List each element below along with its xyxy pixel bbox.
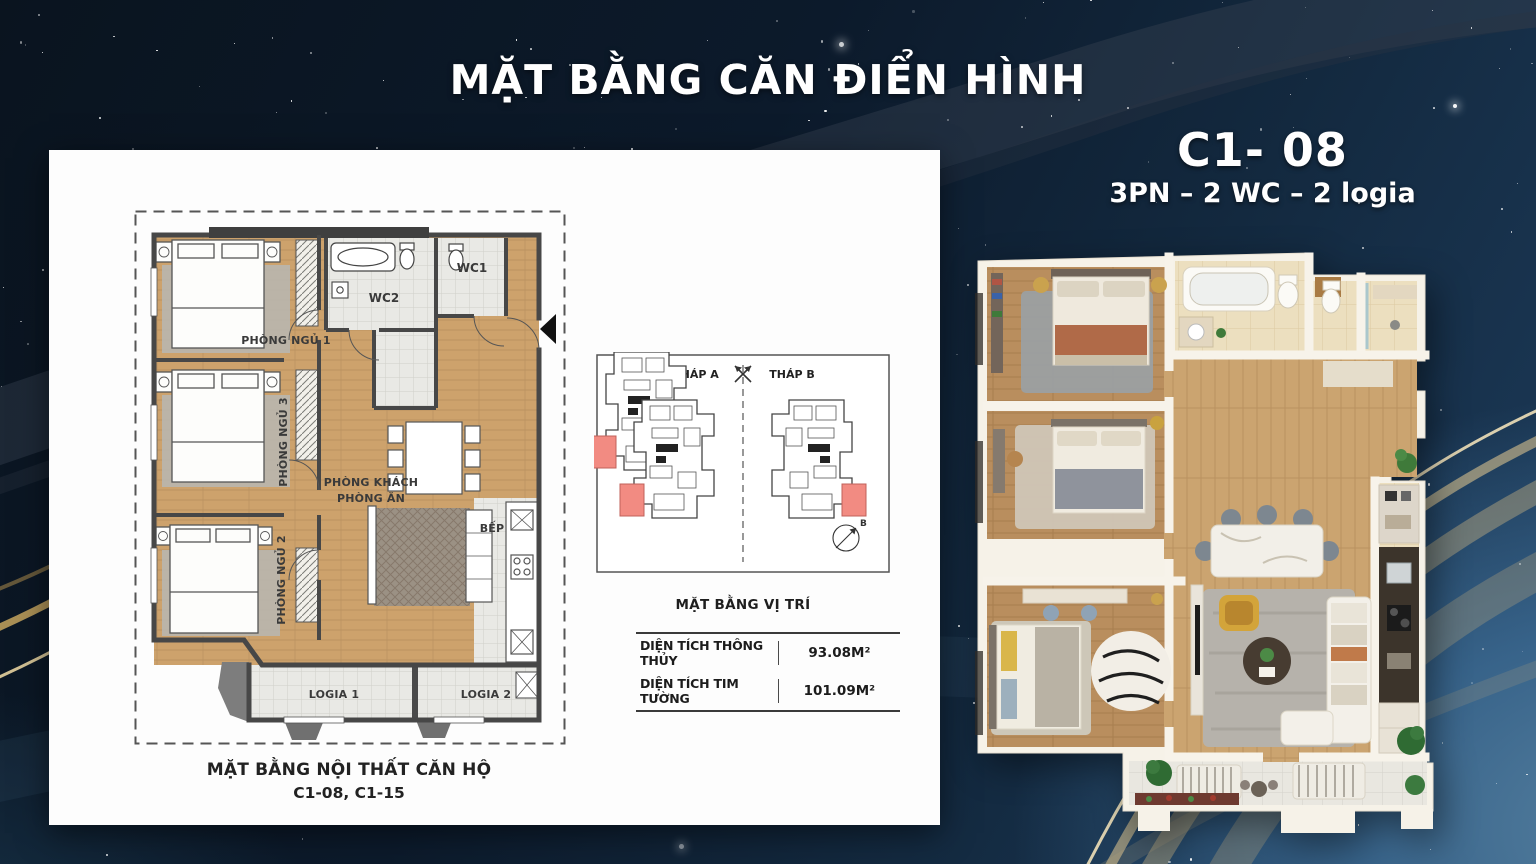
kitchen-counter-icon (506, 502, 539, 662)
room-label-dining: PHÒNG ĂN (337, 492, 405, 505)
room-label-logia1: LOGIA 1 (309, 688, 360, 701)
bathtub-icon (331, 243, 395, 271)
location-caption: MẶT BẰNG VỊ TRÍ (594, 597, 892, 613)
floorplan-panel: PHÒNG NGỦ 1 WC2 WC1 PHÒNG NGỦ 3 PHÒNG NG… (49, 150, 940, 825)
highlighted-unit (594, 436, 616, 468)
room-label-bedroom2: PHÒNG NGỦ 2 (274, 535, 288, 625)
area-row: DIỆN TÍCH THÔNG THỦY 93.08M² (636, 634, 900, 672)
living-rug (374, 508, 470, 606)
sink-icon (332, 282, 348, 298)
render-kitchen (1379, 485, 1419, 753)
area-table: DIỆN TÍCH THÔNG THỦY 93.08M² DIỆN TÍCH T… (636, 632, 900, 712)
room-label-bedroom3: PHÒNG NGỦ 3 (276, 397, 290, 487)
entry-arrow-icon (540, 314, 556, 344)
room-label-kitchen: BẾP (480, 520, 505, 535)
plan-caption: MẶT BẰNG NỘI THẤT CĂN HỘ C1-08, C1-15 (109, 760, 589, 802)
slide: MẶT BẰNG CĂN ĐIỂN HÌNH (0, 0, 1536, 864)
area-value: 93.08M² (778, 641, 900, 665)
room-label-living: PHÒNG KHÁCH (324, 476, 418, 489)
room-label-wc2: WC2 (369, 291, 399, 305)
area-label: DIỆN TÍCH THÔNG THỦY (636, 634, 778, 672)
room-label-wc1: WC1 (457, 261, 487, 275)
location-diagram: THÁP A THÁP B (594, 352, 892, 575)
wardrobe-icons (296, 240, 318, 622)
render-living (1191, 585, 1371, 747)
room-label-bedroom1: PHÒNG NGỦ 1 (241, 333, 331, 347)
render-bedroom2 (993, 416, 1164, 529)
room-label-logia2: LOGIA 2 (461, 688, 512, 701)
unit-header: C1- 08 3PN – 2 WC – 2 logia (1040, 126, 1485, 209)
unit-spec: 3PN – 2 WC – 2 logia (1040, 178, 1485, 209)
area-value: 101.09M² (778, 679, 900, 703)
plan-caption-title: MẶT BẰNG NỘI THẤT CĂN HỘ (109, 760, 589, 780)
page-title: MẶT BẰNG CĂN ĐIỂN HÌNH (0, 56, 1536, 104)
area-row: DIỆN TÍCH TIM TƯỜNG 101.09M² (636, 672, 900, 710)
tower-b-label: THÁP B (769, 368, 815, 381)
unit-render-3d (963, 233, 1445, 833)
window-glazing (975, 293, 983, 735)
area-label: DIỆN TÍCH TIM TƯỜNG (636, 672, 778, 710)
plan-caption-units: C1-08, C1-15 (109, 784, 589, 802)
unit-floorplan-2d: PHÒNG NGỦ 1 WC2 WC1 PHÒNG NGỦ 3 PHÒNG NG… (134, 210, 566, 745)
unit-code: C1- 08 (1040, 126, 1485, 174)
compass-label: B (860, 519, 867, 529)
